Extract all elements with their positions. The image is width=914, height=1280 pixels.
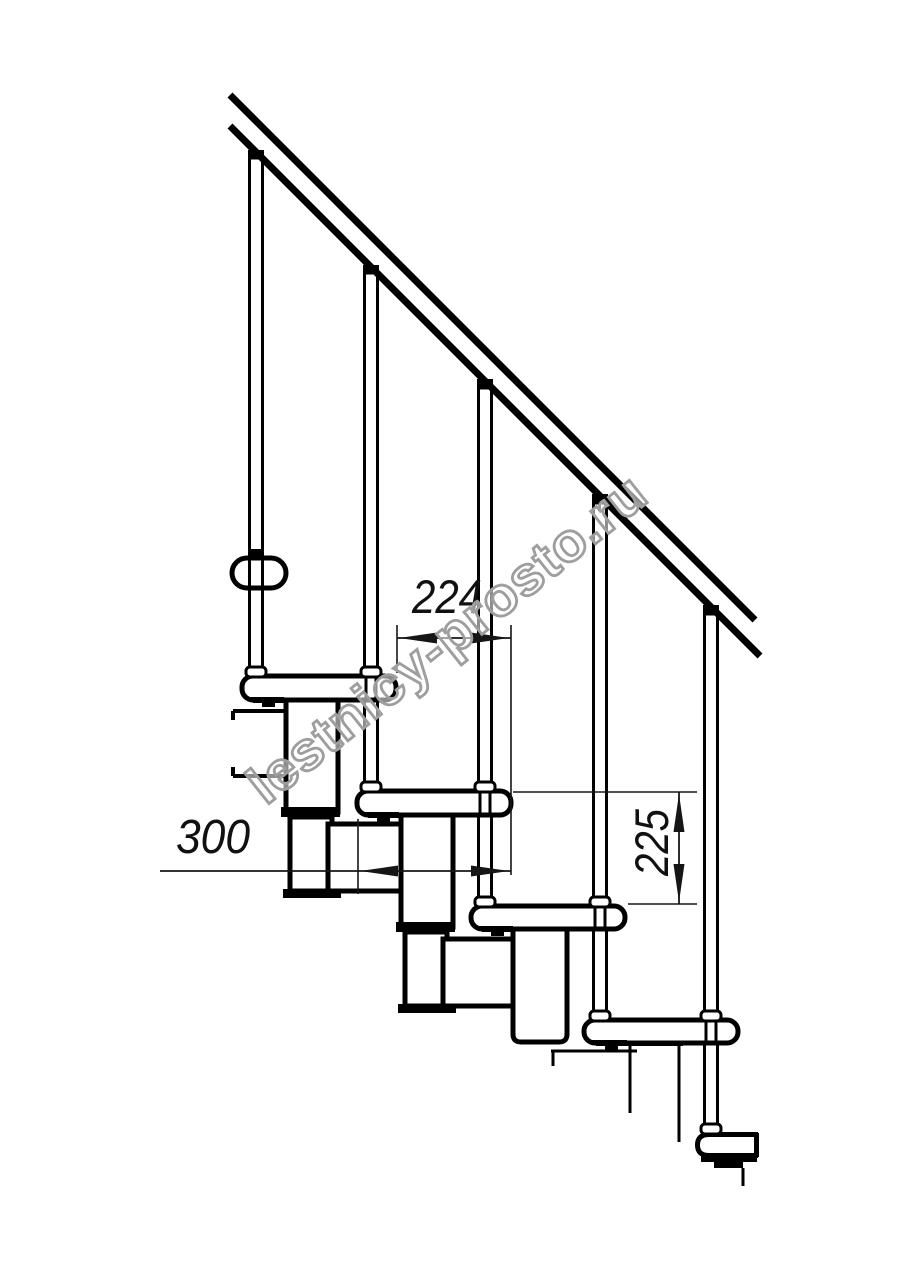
module-break-lines-3 (551, 1051, 637, 1113)
tread-5-cut (698, 1133, 759, 1157)
dim-text-tread-depth: 300 (176, 811, 250, 864)
module-tube-3 (513, 929, 567, 1042)
module-break-lines-4 (630, 1043, 679, 1142)
baluster-4 (592, 494, 608, 1020)
baluster-1 (248, 150, 264, 676)
module-collar-1 (328, 824, 406, 891)
tread-3 (471, 906, 625, 929)
baluster-5 (703, 605, 719, 1133)
tread-2 (357, 791, 511, 815)
dim-text-step-height: 225 (625, 808, 678, 877)
stair-technical-drawing: 224 300 225 lestnicy-prosto.ru (0, 0, 914, 1280)
module-collar-2 (443, 939, 521, 1006)
drawing-svg: 224 300 225 lestnicy-prosto.ru (0, 0, 914, 1280)
module-band-5b (714, 1162, 743, 1168)
